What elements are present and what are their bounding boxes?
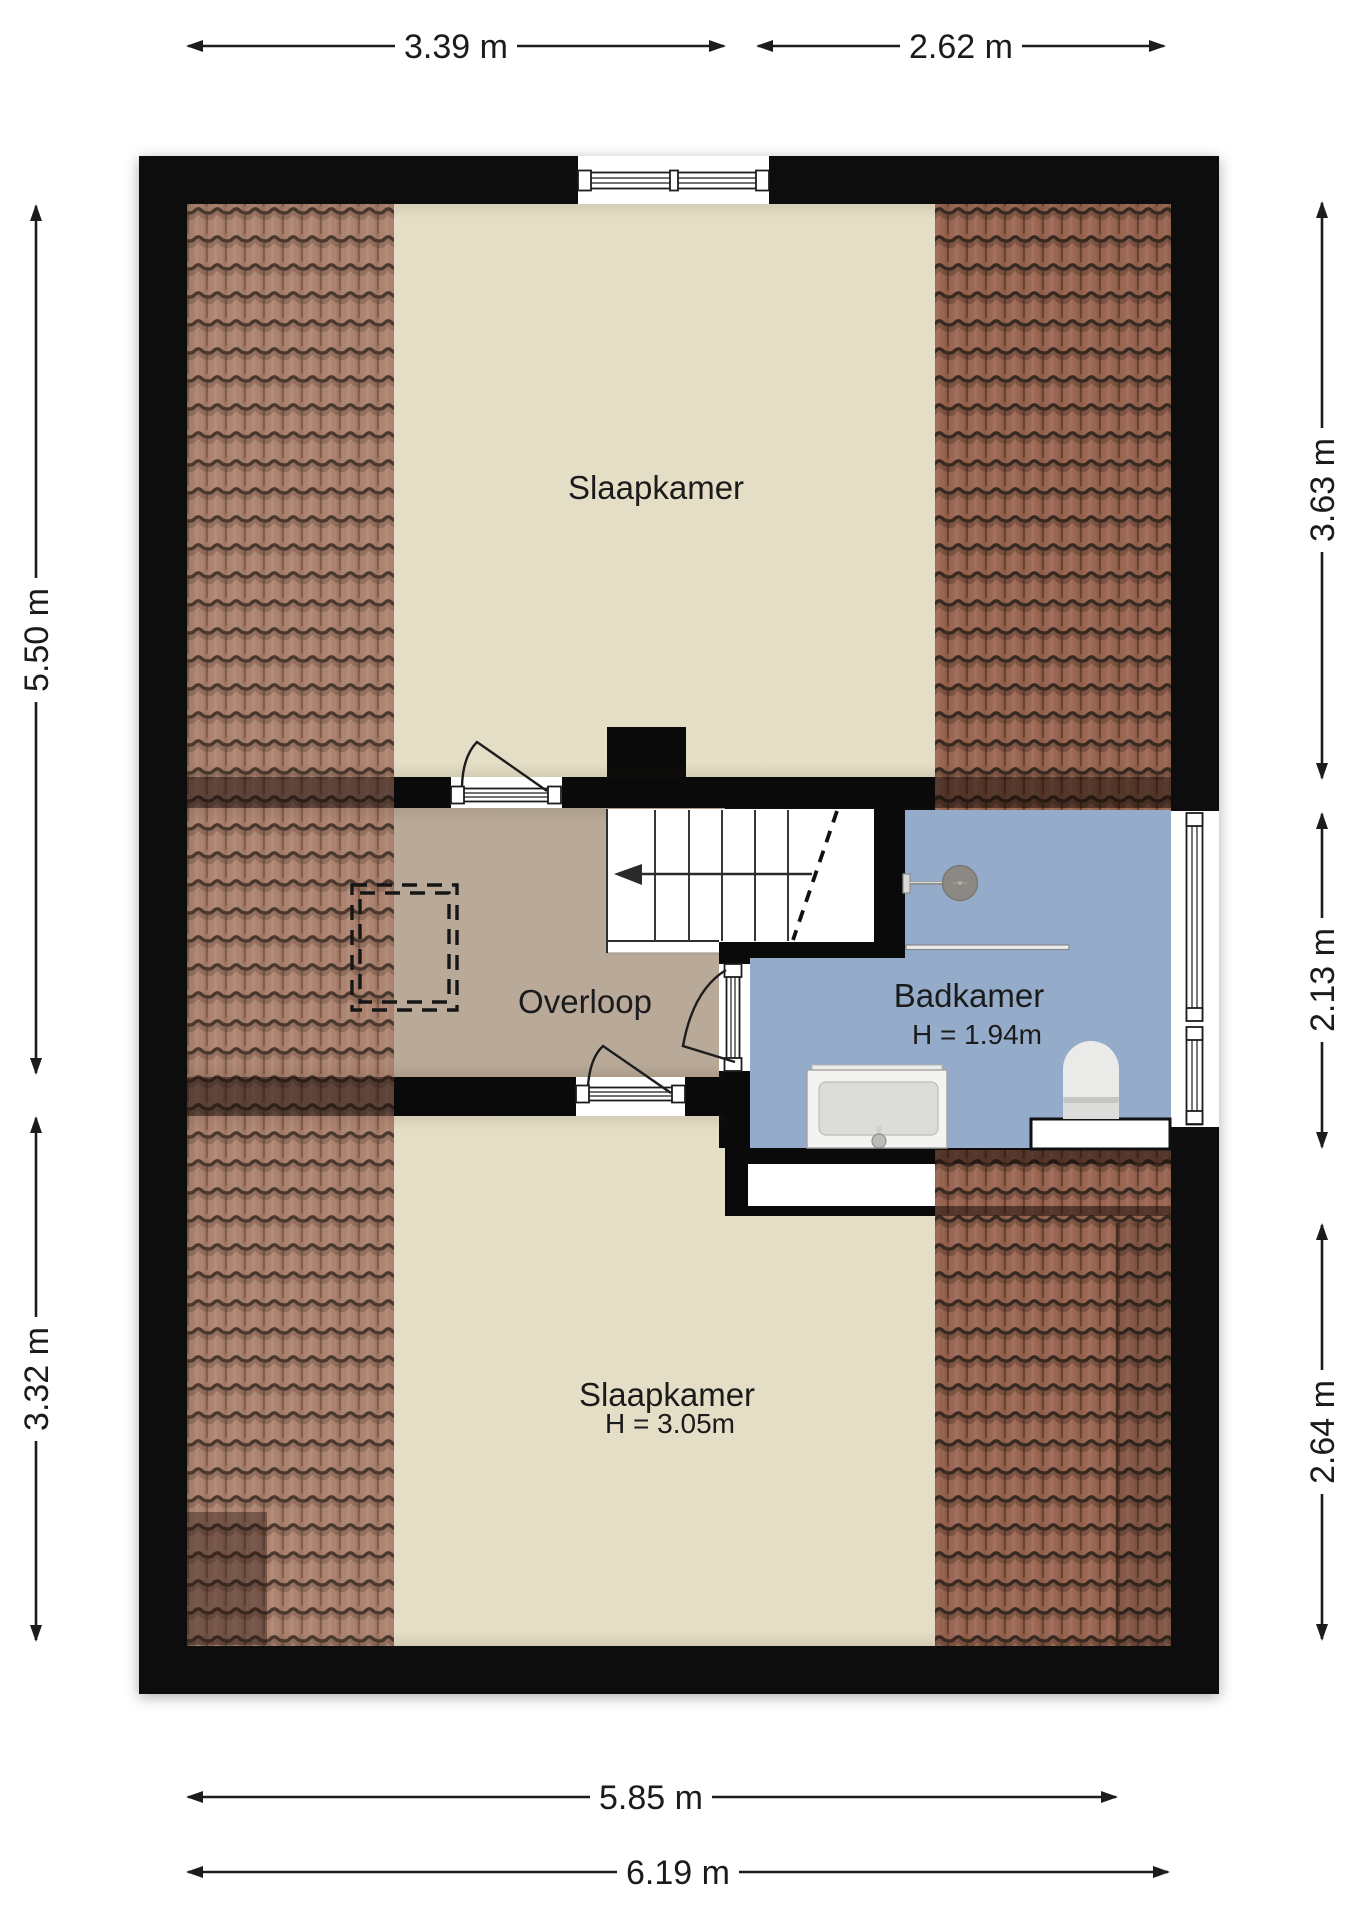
- svg-text:2.64 m: 2.64 m: [1304, 1380, 1342, 1484]
- svg-text:H = 1.94m: H = 1.94m: [912, 1019, 1042, 1050]
- svg-text:2.13 m: 2.13 m: [1304, 928, 1342, 1032]
- svg-text:Badkamer: Badkamer: [894, 977, 1044, 1014]
- svg-text:6.19 m: 6.19 m: [626, 1854, 730, 1892]
- svg-text:2.62 m: 2.62 m: [909, 28, 1013, 66]
- svg-text:3.39 m: 3.39 m: [404, 28, 508, 66]
- svg-text:Overloop: Overloop: [518, 983, 652, 1020]
- svg-text:5.85 m: 5.85 m: [599, 1779, 703, 1817]
- svg-text:3.63 m: 3.63 m: [1304, 438, 1342, 542]
- svg-text:Slaapkamer: Slaapkamer: [568, 469, 744, 506]
- svg-text:5.50 m: 5.50 m: [18, 588, 56, 692]
- svg-text:3.32 m: 3.32 m: [18, 1327, 56, 1431]
- svg-text:H = 3.05m: H = 3.05m: [605, 1408, 735, 1439]
